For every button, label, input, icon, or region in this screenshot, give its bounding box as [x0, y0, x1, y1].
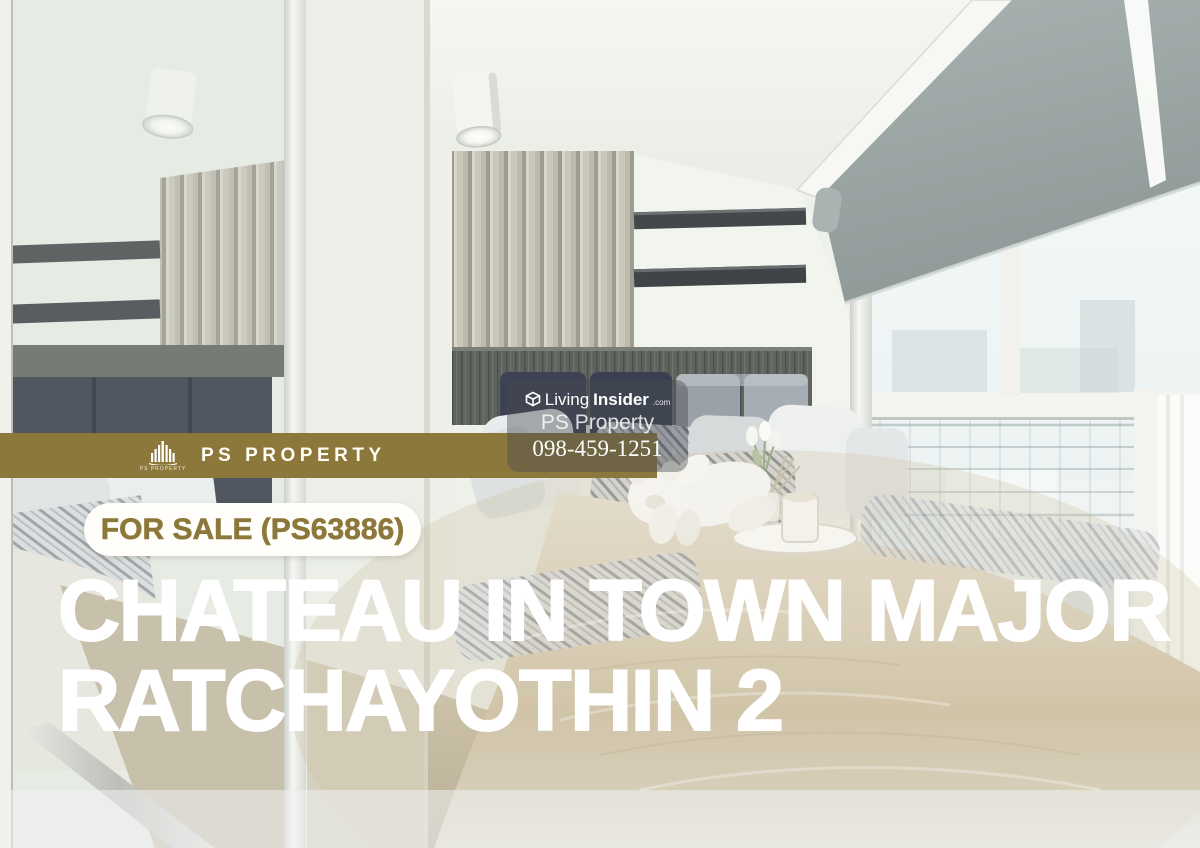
ceiling-downlight — [451, 70, 502, 149]
living-insider-logo: LivingInsider.com — [525, 391, 671, 408]
bottom-light-band — [0, 790, 1200, 848]
for-sale-badge: FOR SALE (PS63886) — [84, 503, 421, 556]
watermark-panel: LivingInsider.com PS Property 098-459-12… — [507, 380, 688, 472]
living-insider-cube-icon — [525, 391, 541, 407]
watermark-phone: 098-459-1251 — [532, 436, 662, 461]
ps-property-logo: PS PROPERTY — [143, 439, 183, 472]
listing-title-line2: RATCHAYOTHIN 2 — [58, 656, 1178, 746]
ps-property-building-icon — [145, 439, 181, 465]
for-sale-badge-label: FOR SALE (PS63886) — [101, 513, 404, 547]
candle — [782, 492, 818, 542]
fluted-accent-wall — [452, 151, 634, 348]
listing-title: CHATEAU IN TOWN MAJOR RATCHAYOTHIN 2 — [58, 566, 1178, 746]
mirror-frame-left — [0, 0, 11, 848]
watermark-brand-suffix: .com — [653, 399, 670, 407]
watermark-brand-light: Living — [545, 391, 589, 408]
brand-name: PS PROPERTY — [201, 445, 386, 467]
watermark-brand-bold: Insider — [593, 391, 649, 408]
ps-property-logo-caption: PS PROPERTY — [140, 466, 186, 472]
listing-poster: PS PROPERTY PS PROPERTY LivingInsider.co… — [0, 0, 1200, 848]
listing-title-line1: CHATEAU IN TOWN MAJOR — [58, 566, 1178, 656]
watermark-agency: PS Property — [541, 411, 654, 435]
